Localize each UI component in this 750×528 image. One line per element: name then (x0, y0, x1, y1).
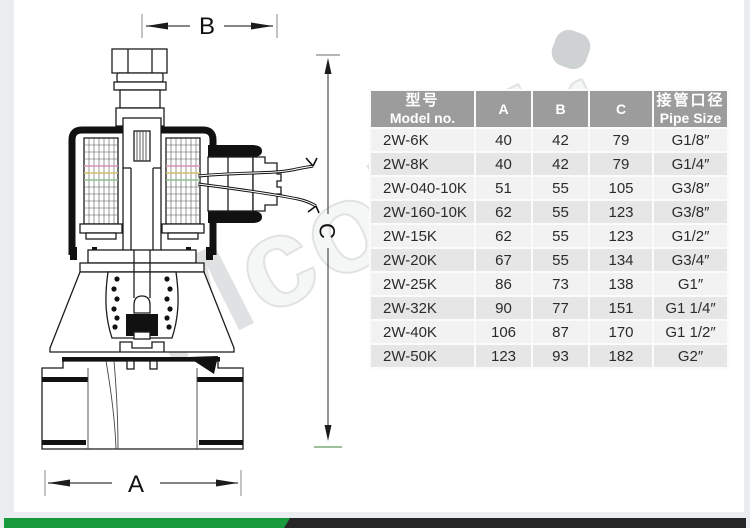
cell-c: 123 (589, 200, 653, 224)
table-row: 2W-50K 123 93 182 G2″ (370, 344, 728, 368)
cell-a: 62 (475, 224, 532, 248)
header-pipe-size: 接管口径 Pipe Size (653, 90, 728, 128)
cell-b: 55 (532, 224, 589, 248)
cell-a: 51 (475, 176, 532, 200)
table-row: 2W-40K 106 87 170 G1 1/2″ (370, 320, 728, 344)
right-edge-strip (744, 0, 750, 528)
valve-cross-section-diagram: B C A (0, 0, 360, 528)
cell-b: 42 (532, 152, 589, 176)
header-b: B (532, 90, 589, 128)
cell-pipe-size: G3/4″ (653, 248, 728, 272)
dim-b-label: B (199, 13, 215, 40)
cell-a: 90 (475, 296, 532, 320)
table-row: 2W-32K 90 77 151 G1 1/4″ (370, 296, 728, 320)
cell-a: 106 (475, 320, 532, 344)
cell-b: 55 (532, 176, 589, 200)
cable-gland (208, 145, 281, 223)
cell-b: 55 (532, 200, 589, 224)
bottom-bar-dark (284, 518, 746, 528)
cell-model: 2W-040-10K (370, 176, 475, 200)
spec-table: 型号 Model no. A B C 接管口径 Pipe Size 2W-6K … (369, 89, 729, 369)
cell-model: 2W-32K (370, 296, 475, 320)
cell-c: 79 (589, 152, 653, 176)
cell-model: 2W-20K (370, 248, 475, 272)
table-row: 2W-15K 62 55 123 G1/2″ (370, 224, 728, 248)
cell-pipe-size: G1/4″ (653, 152, 728, 176)
cell-b: 55 (532, 248, 589, 272)
cell-c: 105 (589, 176, 653, 200)
cell-pipe-size: G1 1/4″ (653, 296, 728, 320)
cell-pipe-size: G1″ (653, 272, 728, 296)
cell-pipe-size: G2″ (653, 344, 728, 368)
cell-c: 151 (589, 296, 653, 320)
spec-table-header: 型号 Model no. A B C 接管口径 Pipe Size (370, 90, 728, 128)
header-c: C (589, 90, 653, 128)
cell-model: 2W-15K (370, 224, 475, 248)
plunger-tube (123, 118, 161, 255)
valve-body (42, 356, 243, 449)
table-row: 2W-6K 40 42 79 G1/8″ (370, 128, 728, 152)
cell-b: 93 (532, 344, 589, 368)
cell-b: 87 (532, 320, 589, 344)
cell-pipe-size: G1 1/2″ (653, 320, 728, 344)
cell-c: 79 (589, 128, 653, 152)
catalog-page: McoLair B C (0, 0, 750, 528)
header-model: 型号 Model no. (370, 90, 475, 128)
cell-c: 170 (589, 320, 653, 344)
cell-a: 67 (475, 248, 532, 272)
cell-model: 2W-25K (370, 272, 475, 296)
cell-pipe-size: G3/8″ (653, 176, 728, 200)
coil-left (84, 138, 118, 224)
cell-model: 2W-160-10K (370, 200, 475, 224)
dim-a-label: A (128, 471, 144, 498)
table-row: 2W-160-10K 62 55 123 G3/8″ (370, 200, 728, 224)
cell-a: 123 (475, 344, 532, 368)
table-row: 2W-25K 86 73 138 G1″ (370, 272, 728, 296)
cell-b: 42 (532, 128, 589, 152)
cell-a: 40 (475, 128, 532, 152)
coil-right (166, 138, 200, 224)
table-row: 2W-8K 40 42 79 G1/4″ (370, 152, 728, 176)
cell-b: 73 (532, 272, 589, 296)
cell-c: 134 (589, 248, 653, 272)
cell-model: 2W-8K (370, 152, 475, 176)
bottom-bar-green (4, 518, 290, 528)
cell-c: 123 (589, 224, 653, 248)
cell-b: 77 (532, 296, 589, 320)
cell-model: 2W-50K (370, 344, 475, 368)
table-row: 2W-20K 67 55 134 G3/4″ (370, 248, 728, 272)
cell-c: 182 (589, 344, 653, 368)
cell-model: 2W-6K (370, 128, 475, 152)
header-a: A (475, 90, 532, 128)
table-row: 2W-040-10K 51 55 105 G3/8″ (370, 176, 728, 200)
cell-a: 62 (475, 200, 532, 224)
cell-model: 2W-40K (370, 320, 475, 344)
cell-pipe-size: G1/8″ (653, 128, 728, 152)
cell-a: 40 (475, 152, 532, 176)
cell-pipe-size: G3/8″ (653, 200, 728, 224)
cell-a: 86 (475, 272, 532, 296)
cell-c: 138 (589, 272, 653, 296)
cell-pipe-size: G1/2″ (653, 224, 728, 248)
dim-c-label: C (315, 223, 340, 239)
connector-stack (112, 49, 167, 126)
watermark-dot (548, 26, 594, 73)
